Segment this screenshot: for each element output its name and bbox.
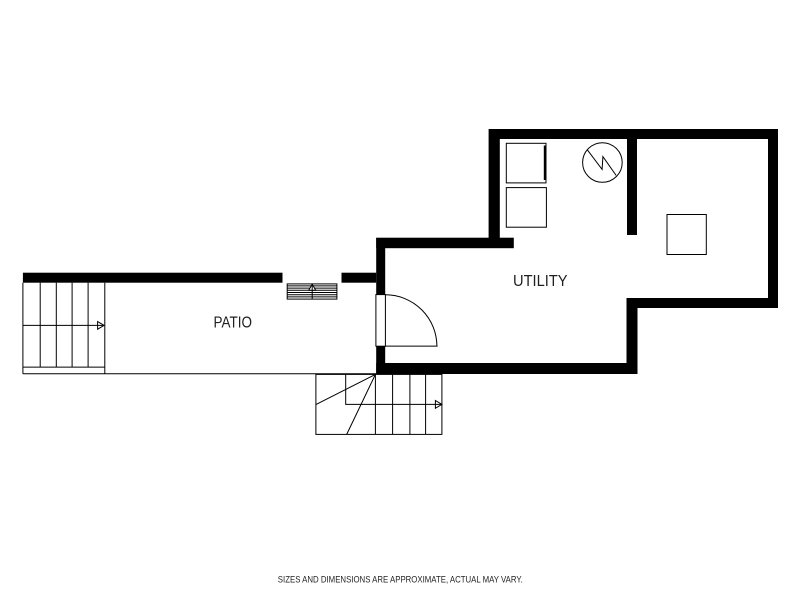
svg-text:PATIO: PATIO — [214, 315, 253, 332]
svg-text:UTILITY: UTILITY — [513, 273, 568, 290]
svg-text:SIZES AND DIMENSIONS ARE APPRO: SIZES AND DIMENSIONS ARE APPROXIMATE, AC… — [278, 574, 523, 584]
